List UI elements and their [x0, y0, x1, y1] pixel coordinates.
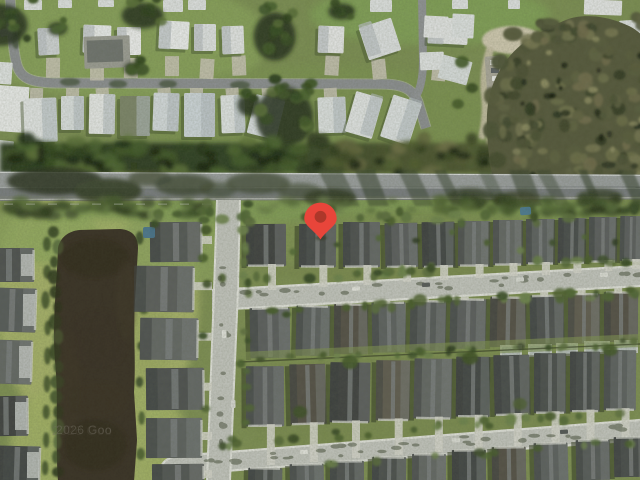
svg-text:2026 Goo: 2026 Goo: [56, 423, 112, 437]
